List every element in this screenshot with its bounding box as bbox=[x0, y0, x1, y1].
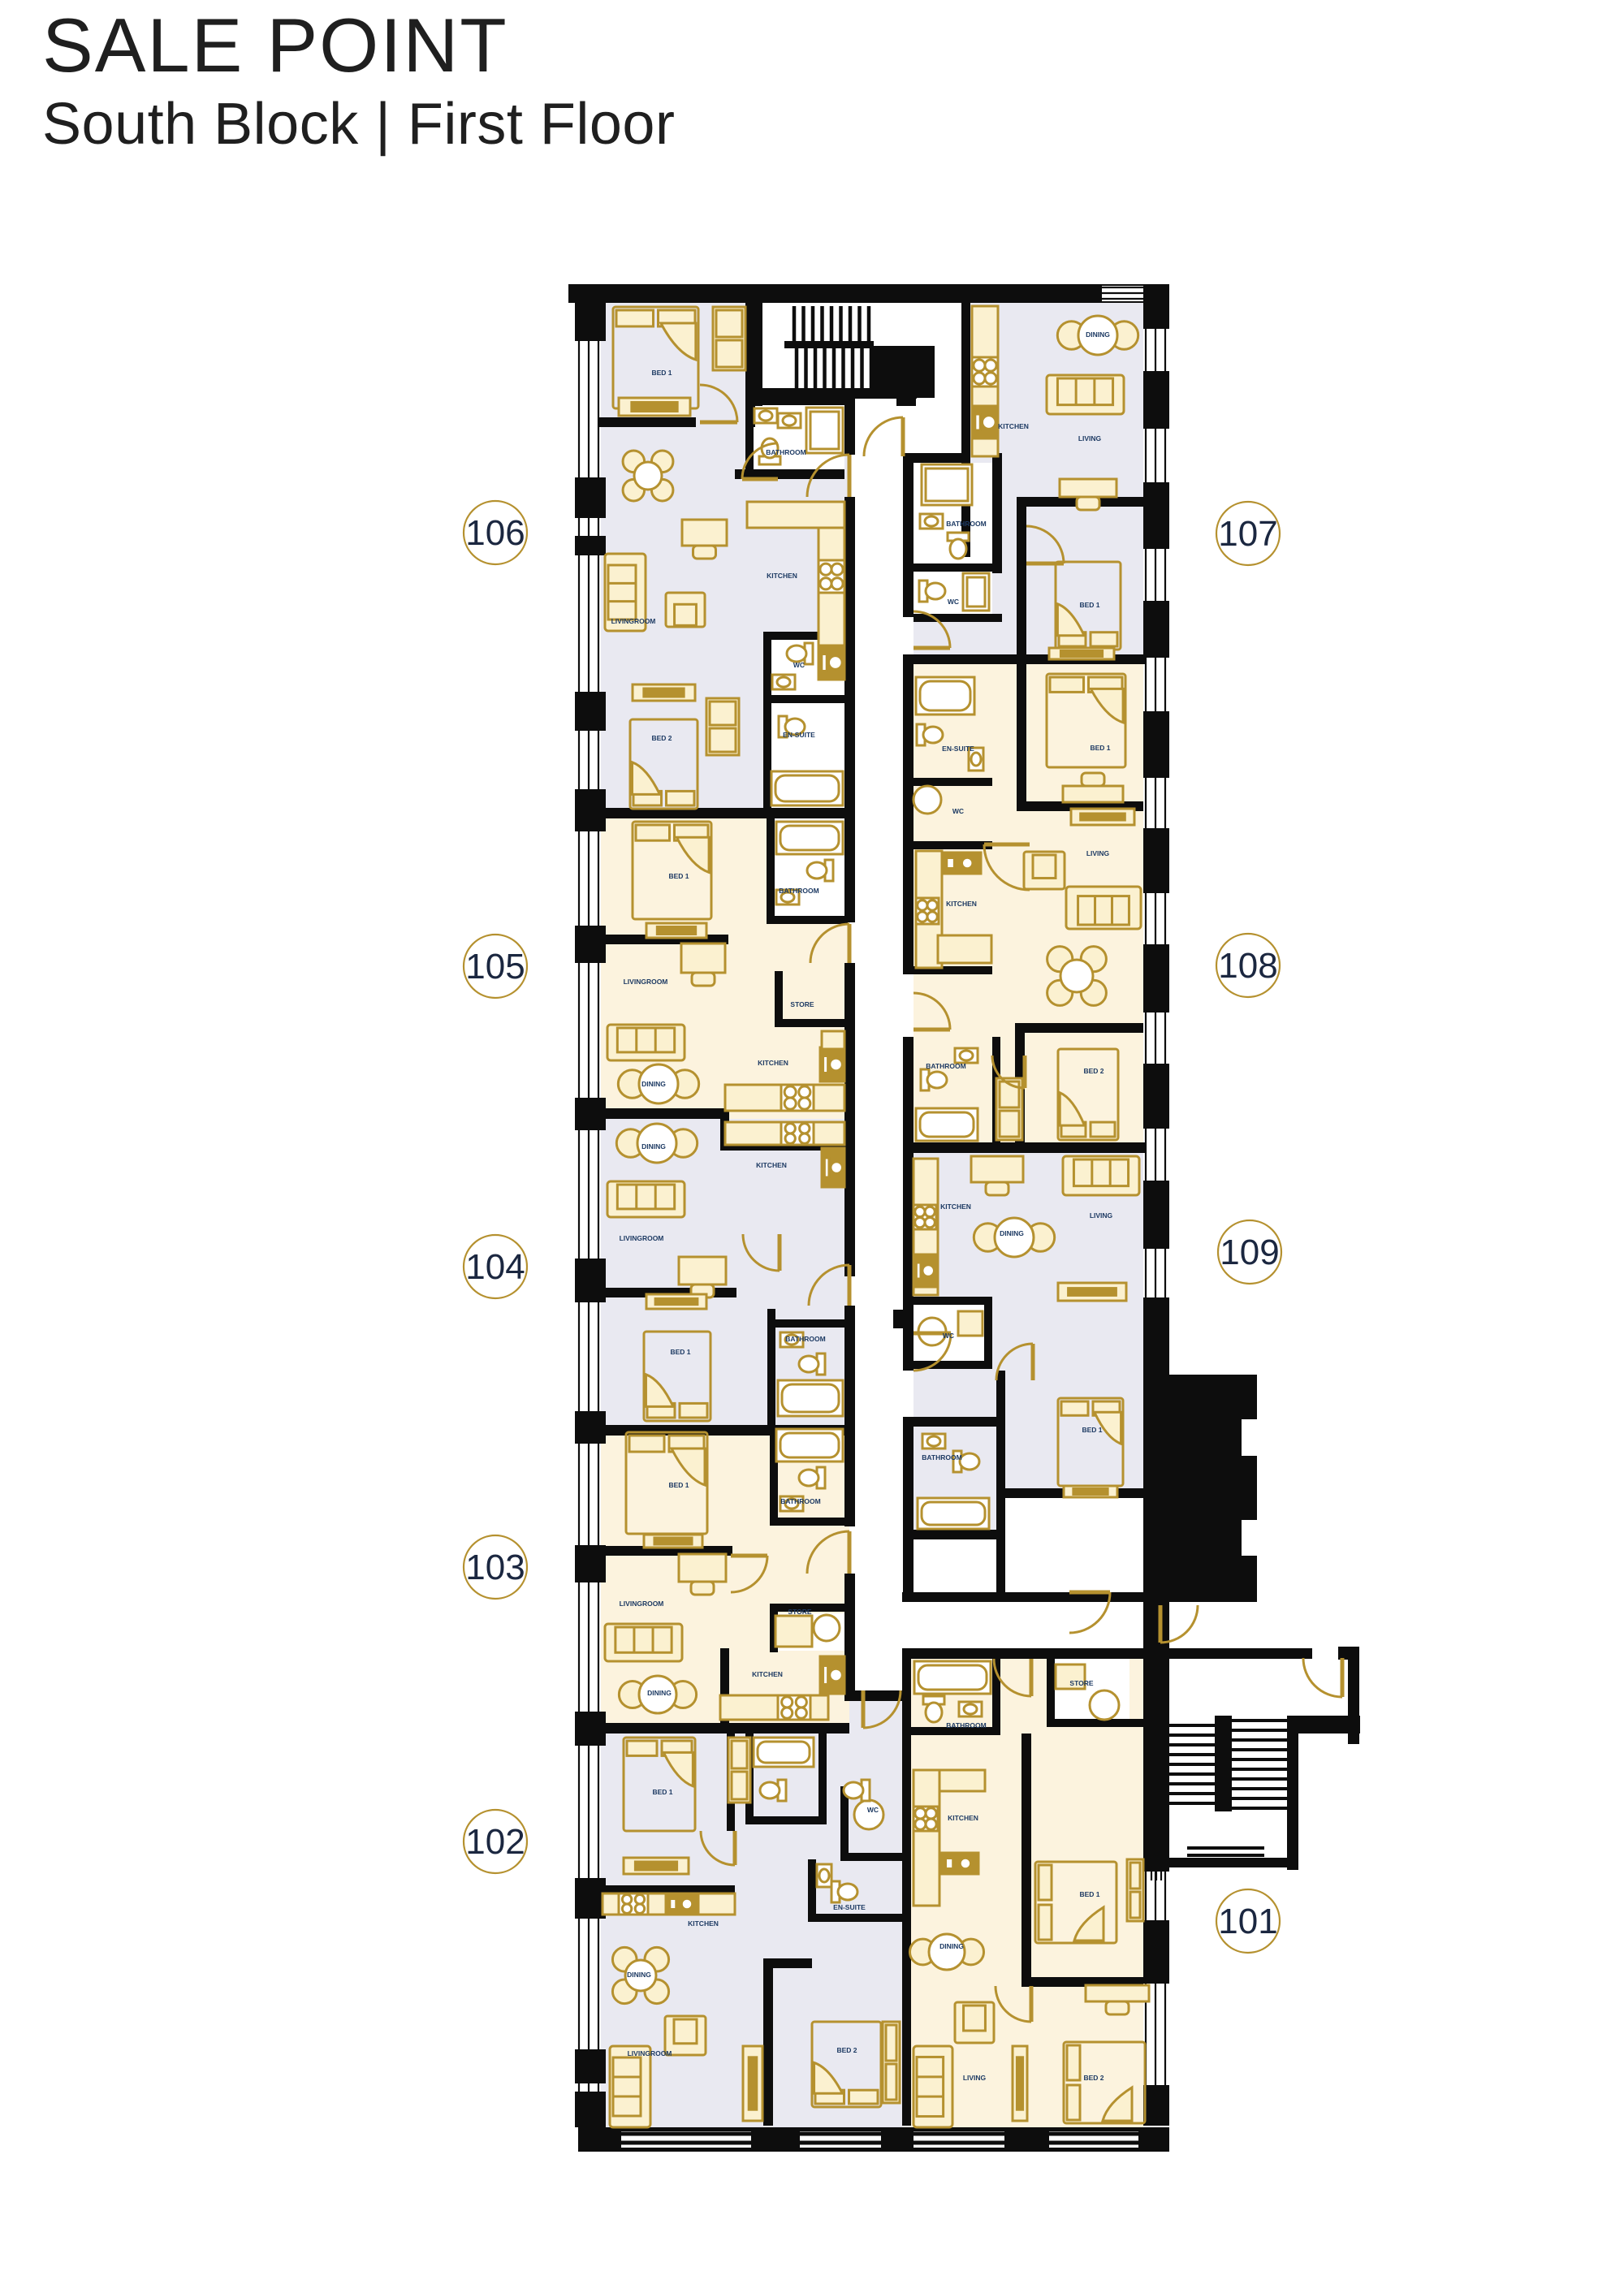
svg-text:STORE: STORE bbox=[788, 1608, 811, 1616]
svg-text:LIVING: LIVING bbox=[1090, 1211, 1113, 1220]
svg-text:102: 102 bbox=[465, 1822, 525, 1862]
svg-text:EN-SUITE: EN-SUITE bbox=[783, 731, 815, 739]
svg-text:DINING: DINING bbox=[647, 1689, 672, 1697]
svg-text:DINING: DINING bbox=[627, 1971, 651, 1979]
svg-text:LIVING: LIVING bbox=[1078, 434, 1102, 443]
svg-text:BED 1: BED 1 bbox=[670, 1348, 690, 1356]
svg-text:DINING: DINING bbox=[641, 1142, 666, 1151]
svg-text:LIVING: LIVING bbox=[963, 2074, 987, 2082]
svg-text:103: 103 bbox=[465, 1548, 525, 1587]
svg-text:WC: WC bbox=[793, 661, 805, 669]
svg-text:109: 109 bbox=[1220, 1233, 1279, 1272]
svg-text:KITCHEN: KITCHEN bbox=[948, 1814, 978, 1822]
svg-text:BATHROOM: BATHROOM bbox=[922, 1453, 961, 1462]
svg-text:BATHROOM: BATHROOM bbox=[785, 1335, 825, 1343]
svg-text:BATHROOM: BATHROOM bbox=[946, 520, 986, 528]
svg-text:107: 107 bbox=[1218, 514, 1277, 554]
svg-text:DINING: DINING bbox=[939, 1942, 964, 1950]
svg-text:BED 1: BED 1 bbox=[1079, 601, 1099, 609]
svg-text:LIVINGROOM: LIVINGROOM bbox=[624, 978, 668, 986]
svg-text:BED 1: BED 1 bbox=[1090, 744, 1110, 752]
svg-text:STORE: STORE bbox=[790, 1000, 814, 1008]
svg-text:South Block | First Floor: South Block | First Floor bbox=[42, 92, 675, 157]
svg-text:BED 2: BED 2 bbox=[836, 2046, 857, 2054]
svg-text:LIVING: LIVING bbox=[1086, 849, 1110, 857]
svg-text:BATHROOM: BATHROOM bbox=[779, 887, 818, 895]
svg-text:WC: WC bbox=[948, 598, 959, 606]
svg-text:EN-SUITE: EN-SUITE bbox=[942, 745, 974, 753]
svg-text:BED 2: BED 2 bbox=[1083, 2074, 1104, 2082]
svg-text:BED 1: BED 1 bbox=[652, 1788, 672, 1796]
svg-text:KITCHEN: KITCHEN bbox=[756, 1161, 787, 1169]
svg-text:BATHROOM: BATHROOM bbox=[926, 1062, 965, 1070]
svg-text:LIVINGROOM: LIVINGROOM bbox=[628, 2049, 672, 2057]
svg-text:BATHROOM: BATHROOM bbox=[946, 1721, 986, 1729]
svg-text:LIVINGROOM: LIVINGROOM bbox=[611, 617, 656, 625]
svg-text:WC: WC bbox=[952, 807, 964, 815]
svg-text:KITCHEN: KITCHEN bbox=[998, 422, 1029, 430]
svg-text:KITCHEN: KITCHEN bbox=[946, 900, 977, 908]
svg-text:STORE: STORE bbox=[1069, 1679, 1093, 1687]
svg-text:KITCHEN: KITCHEN bbox=[752, 1670, 783, 1678]
svg-text:WC: WC bbox=[943, 1332, 954, 1340]
svg-text:WC: WC bbox=[867, 1806, 879, 1814]
svg-text:101: 101 bbox=[1218, 1902, 1277, 1941]
svg-text:DINING: DINING bbox=[1000, 1229, 1024, 1237]
svg-text:BED 2: BED 2 bbox=[1083, 1067, 1104, 1075]
svg-text:EN-SUITE: EN-SUITE bbox=[833, 1903, 866, 1911]
svg-text:KITCHEN: KITCHEN bbox=[758, 1059, 788, 1067]
svg-text:108: 108 bbox=[1218, 946, 1277, 986]
svg-text:BED 1: BED 1 bbox=[1079, 1890, 1099, 1898]
svg-text:BED 1: BED 1 bbox=[1082, 1426, 1102, 1434]
svg-text:BATHROOM: BATHROOM bbox=[780, 1497, 820, 1505]
svg-text:104: 104 bbox=[465, 1247, 525, 1287]
svg-text:BED 2: BED 2 bbox=[651, 734, 672, 742]
svg-text:BED 1: BED 1 bbox=[668, 1481, 689, 1489]
svg-text:BED 1: BED 1 bbox=[668, 872, 689, 880]
svg-text:SALE POINT: SALE POINT bbox=[42, 2, 508, 88]
svg-text:KITCHEN: KITCHEN bbox=[940, 1202, 971, 1211]
svg-text:106: 106 bbox=[465, 513, 525, 553]
svg-text:DINING: DINING bbox=[1086, 330, 1110, 339]
svg-text:DINING: DINING bbox=[641, 1080, 666, 1088]
svg-text:KITCHEN: KITCHEN bbox=[688, 1919, 719, 1928]
svg-text:LIVINGROOM: LIVINGROOM bbox=[620, 1600, 664, 1608]
svg-text:105: 105 bbox=[465, 947, 525, 987]
svg-text:BED 1: BED 1 bbox=[651, 369, 672, 377]
svg-text:BATHROOM: BATHROOM bbox=[766, 448, 806, 456]
svg-text:LIVINGROOM: LIVINGROOM bbox=[620, 1234, 664, 1242]
svg-text:KITCHEN: KITCHEN bbox=[767, 572, 797, 580]
